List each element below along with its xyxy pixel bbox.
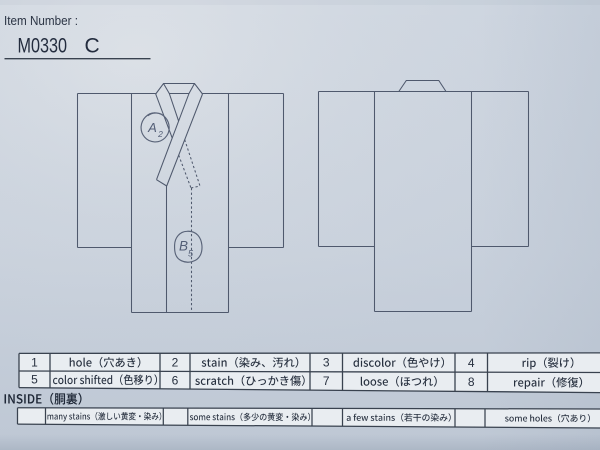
svg-text:2: 2 bbox=[157, 129, 163, 139]
svg-text:7: 7 bbox=[323, 374, 330, 388]
svg-text:4: 4 bbox=[468, 356, 475, 370]
svg-text:2: 2 bbox=[172, 356, 179, 370]
svg-text:Item Number :: Item Number : bbox=[4, 13, 78, 28]
svg-text:3: 3 bbox=[323, 356, 330, 370]
svg-text:1: 1 bbox=[31, 355, 38, 369]
svg-text:5: 5 bbox=[31, 373, 38, 387]
svg-text:M0330: M0330 bbox=[18, 35, 68, 58]
svg-text:B: B bbox=[179, 239, 188, 254]
svg-text:6: 6 bbox=[172, 373, 179, 387]
svg-text:8: 8 bbox=[468, 375, 475, 389]
svg-text:C: C bbox=[85, 35, 100, 58]
svg-text:A: A bbox=[147, 120, 157, 135]
